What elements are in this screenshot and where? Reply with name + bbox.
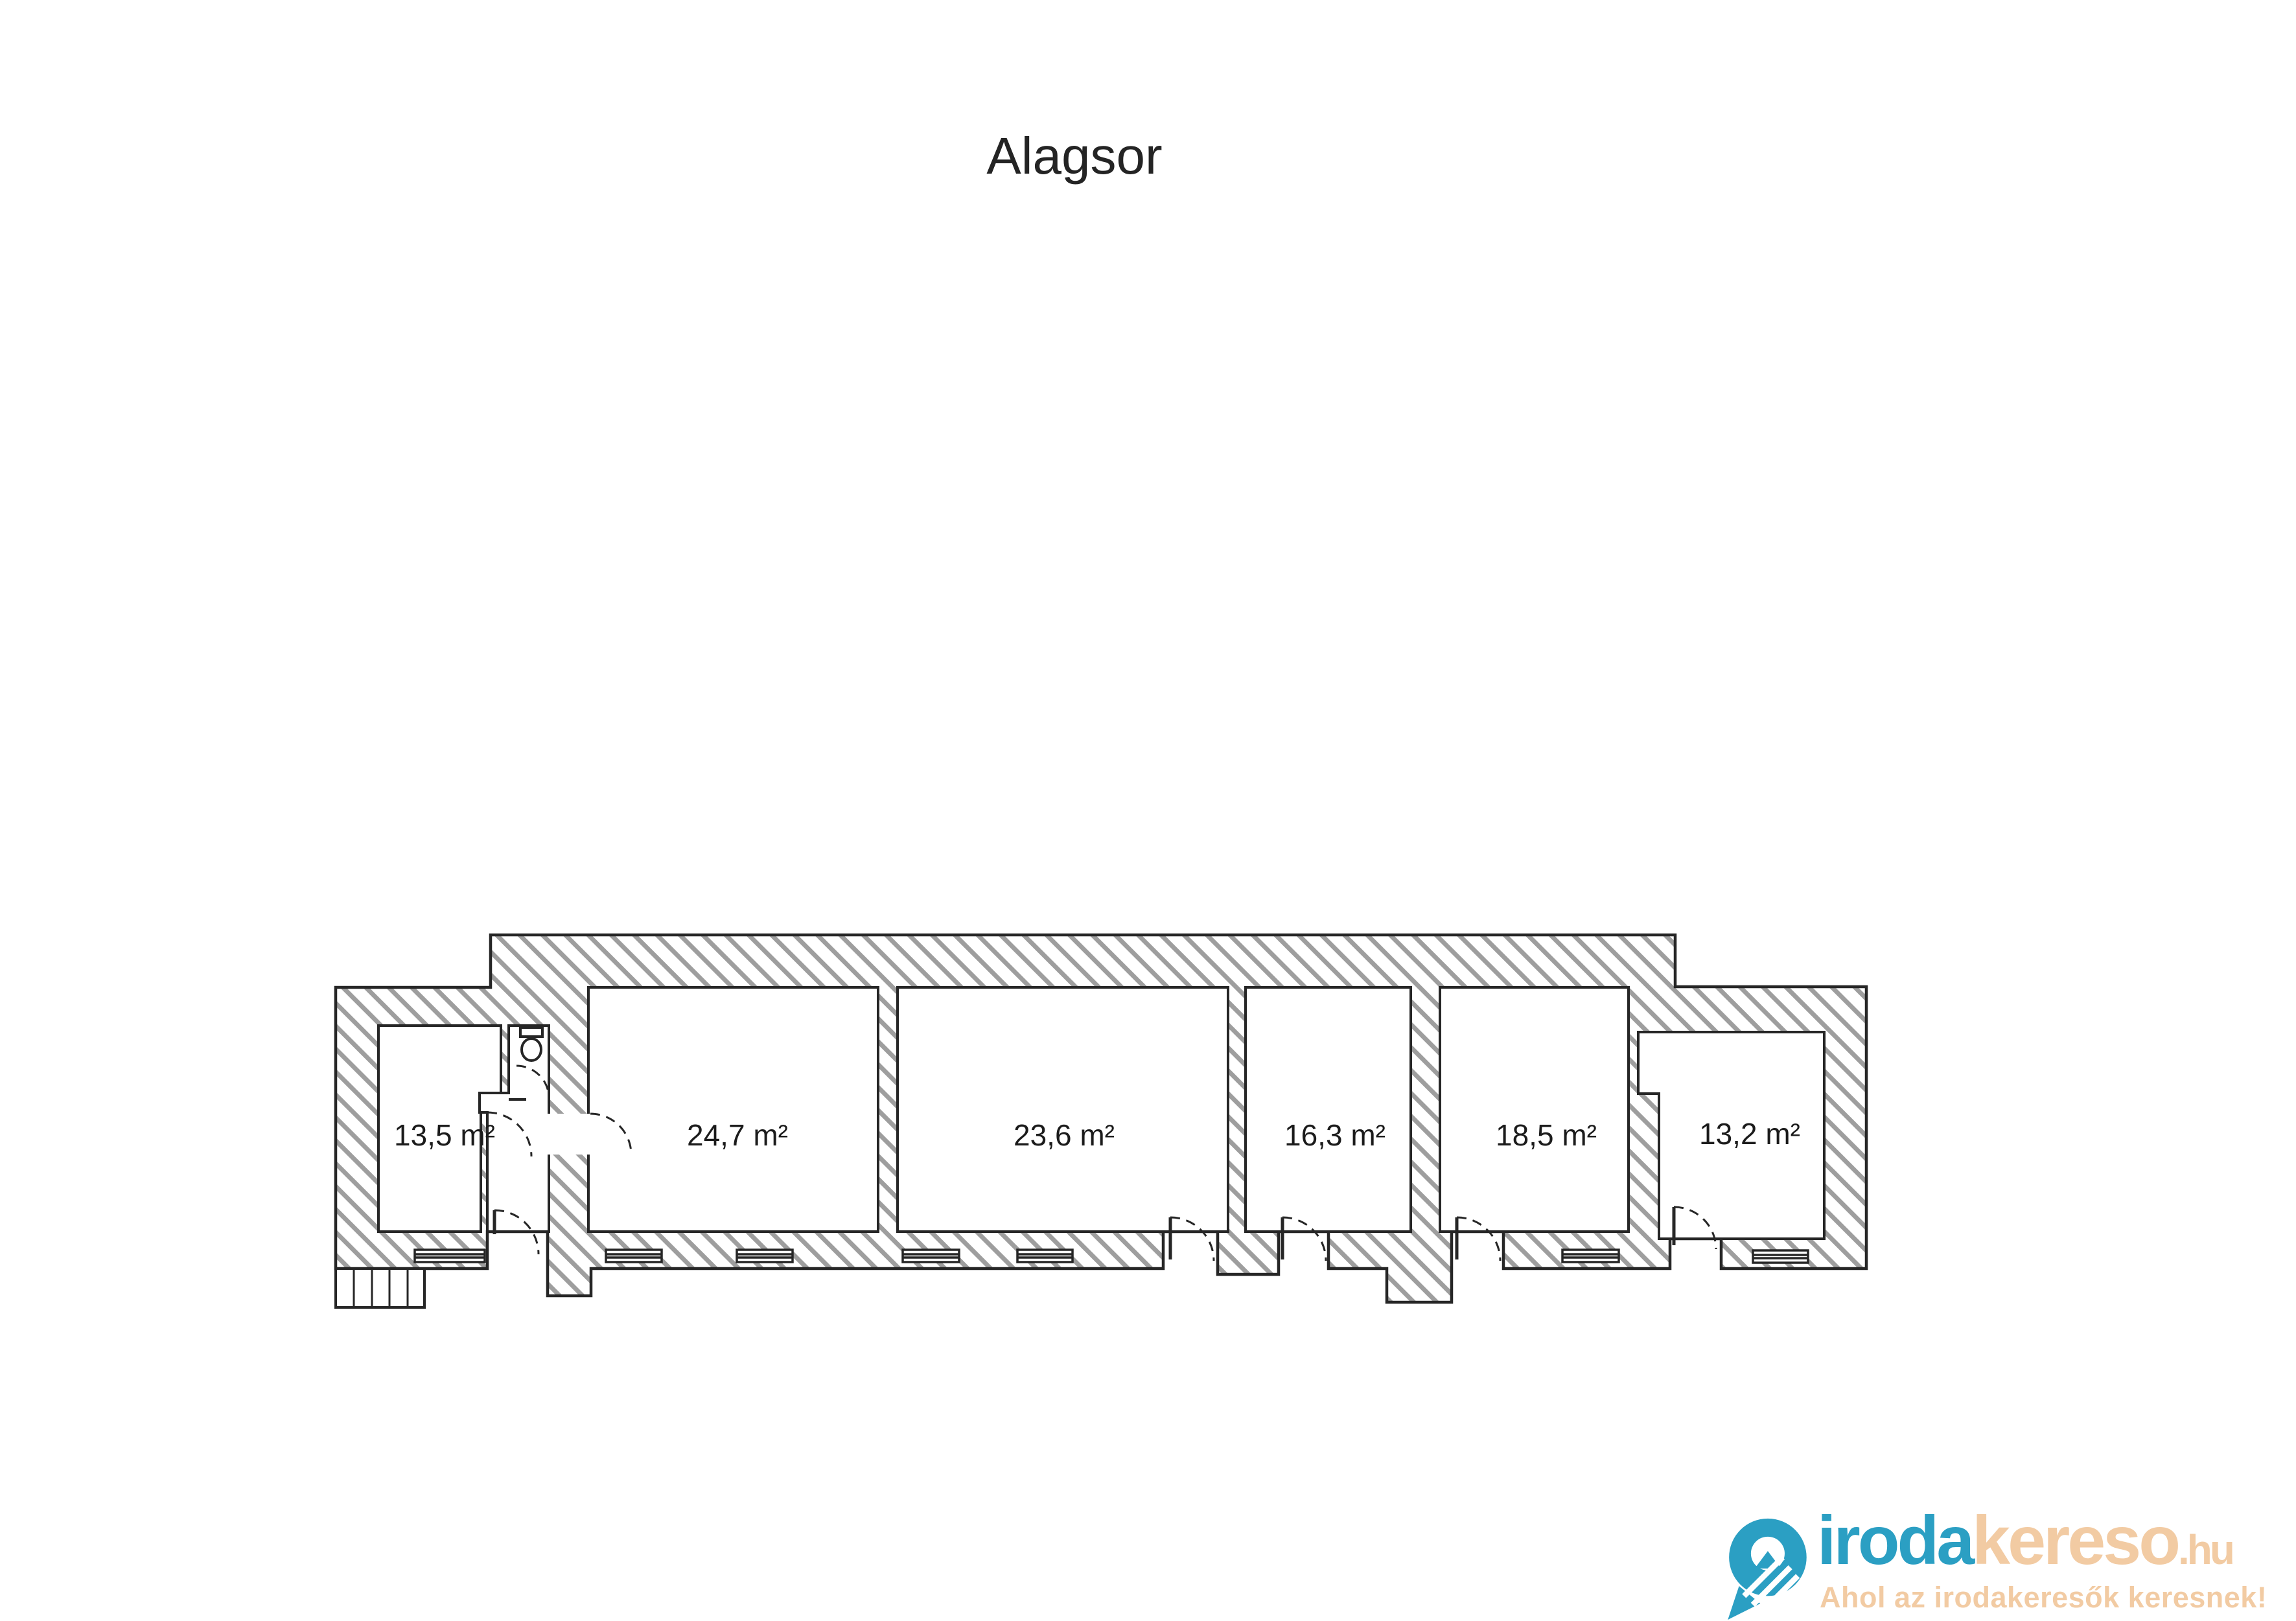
room-area-label: 16,3 m²	[1284, 1118, 1386, 1152]
logo-pin-icon	[1724, 1516, 1809, 1621]
room-24-7	[588, 987, 878, 1232]
logo-wordmark-secondary: kereso	[1972, 1502, 2178, 1579]
room-area-label: 13,2 m²	[1699, 1117, 1800, 1151]
room-area-label: 18,5 m²	[1496, 1118, 1597, 1152]
room-16-3	[1246, 987, 1411, 1232]
room-area-label: 13,5 m²	[394, 1118, 495, 1152]
logo-wordmark-primary: iroda	[1817, 1502, 1972, 1579]
window	[737, 1250, 793, 1262]
window	[606, 1250, 662, 1262]
logo-wordmark: irodakereso.hu	[1817, 1502, 2232, 1581]
site-logo: irodakereso.hu Ahol az irodakeresők kere…	[1721, 1511, 2296, 1621]
floor-plan: Alagsor	[0, 0, 2296, 1621]
logo-tagline: Ahol az irodakeresők keresnek!	[1820, 1581, 2267, 1615]
room-23-6	[898, 987, 1228, 1232]
window	[1562, 1250, 1619, 1262]
room-area-label: 24,7 m²	[687, 1118, 788, 1152]
window	[1017, 1250, 1073, 1262]
toilet-icon	[520, 1028, 542, 1061]
window	[1753, 1250, 1808, 1263]
window	[903, 1250, 959, 1262]
page-title: Alagsor	[986, 127, 1162, 185]
entrance-stairs	[336, 1269, 424, 1307]
doorway-hall-to-room	[548, 1114, 590, 1155]
window	[415, 1250, 485, 1262]
room-18-5	[1440, 987, 1629, 1232]
logo-wordmark-tld: .hu	[2178, 1526, 2232, 1573]
room-area-label: 23,6 m²	[1014, 1118, 1115, 1152]
